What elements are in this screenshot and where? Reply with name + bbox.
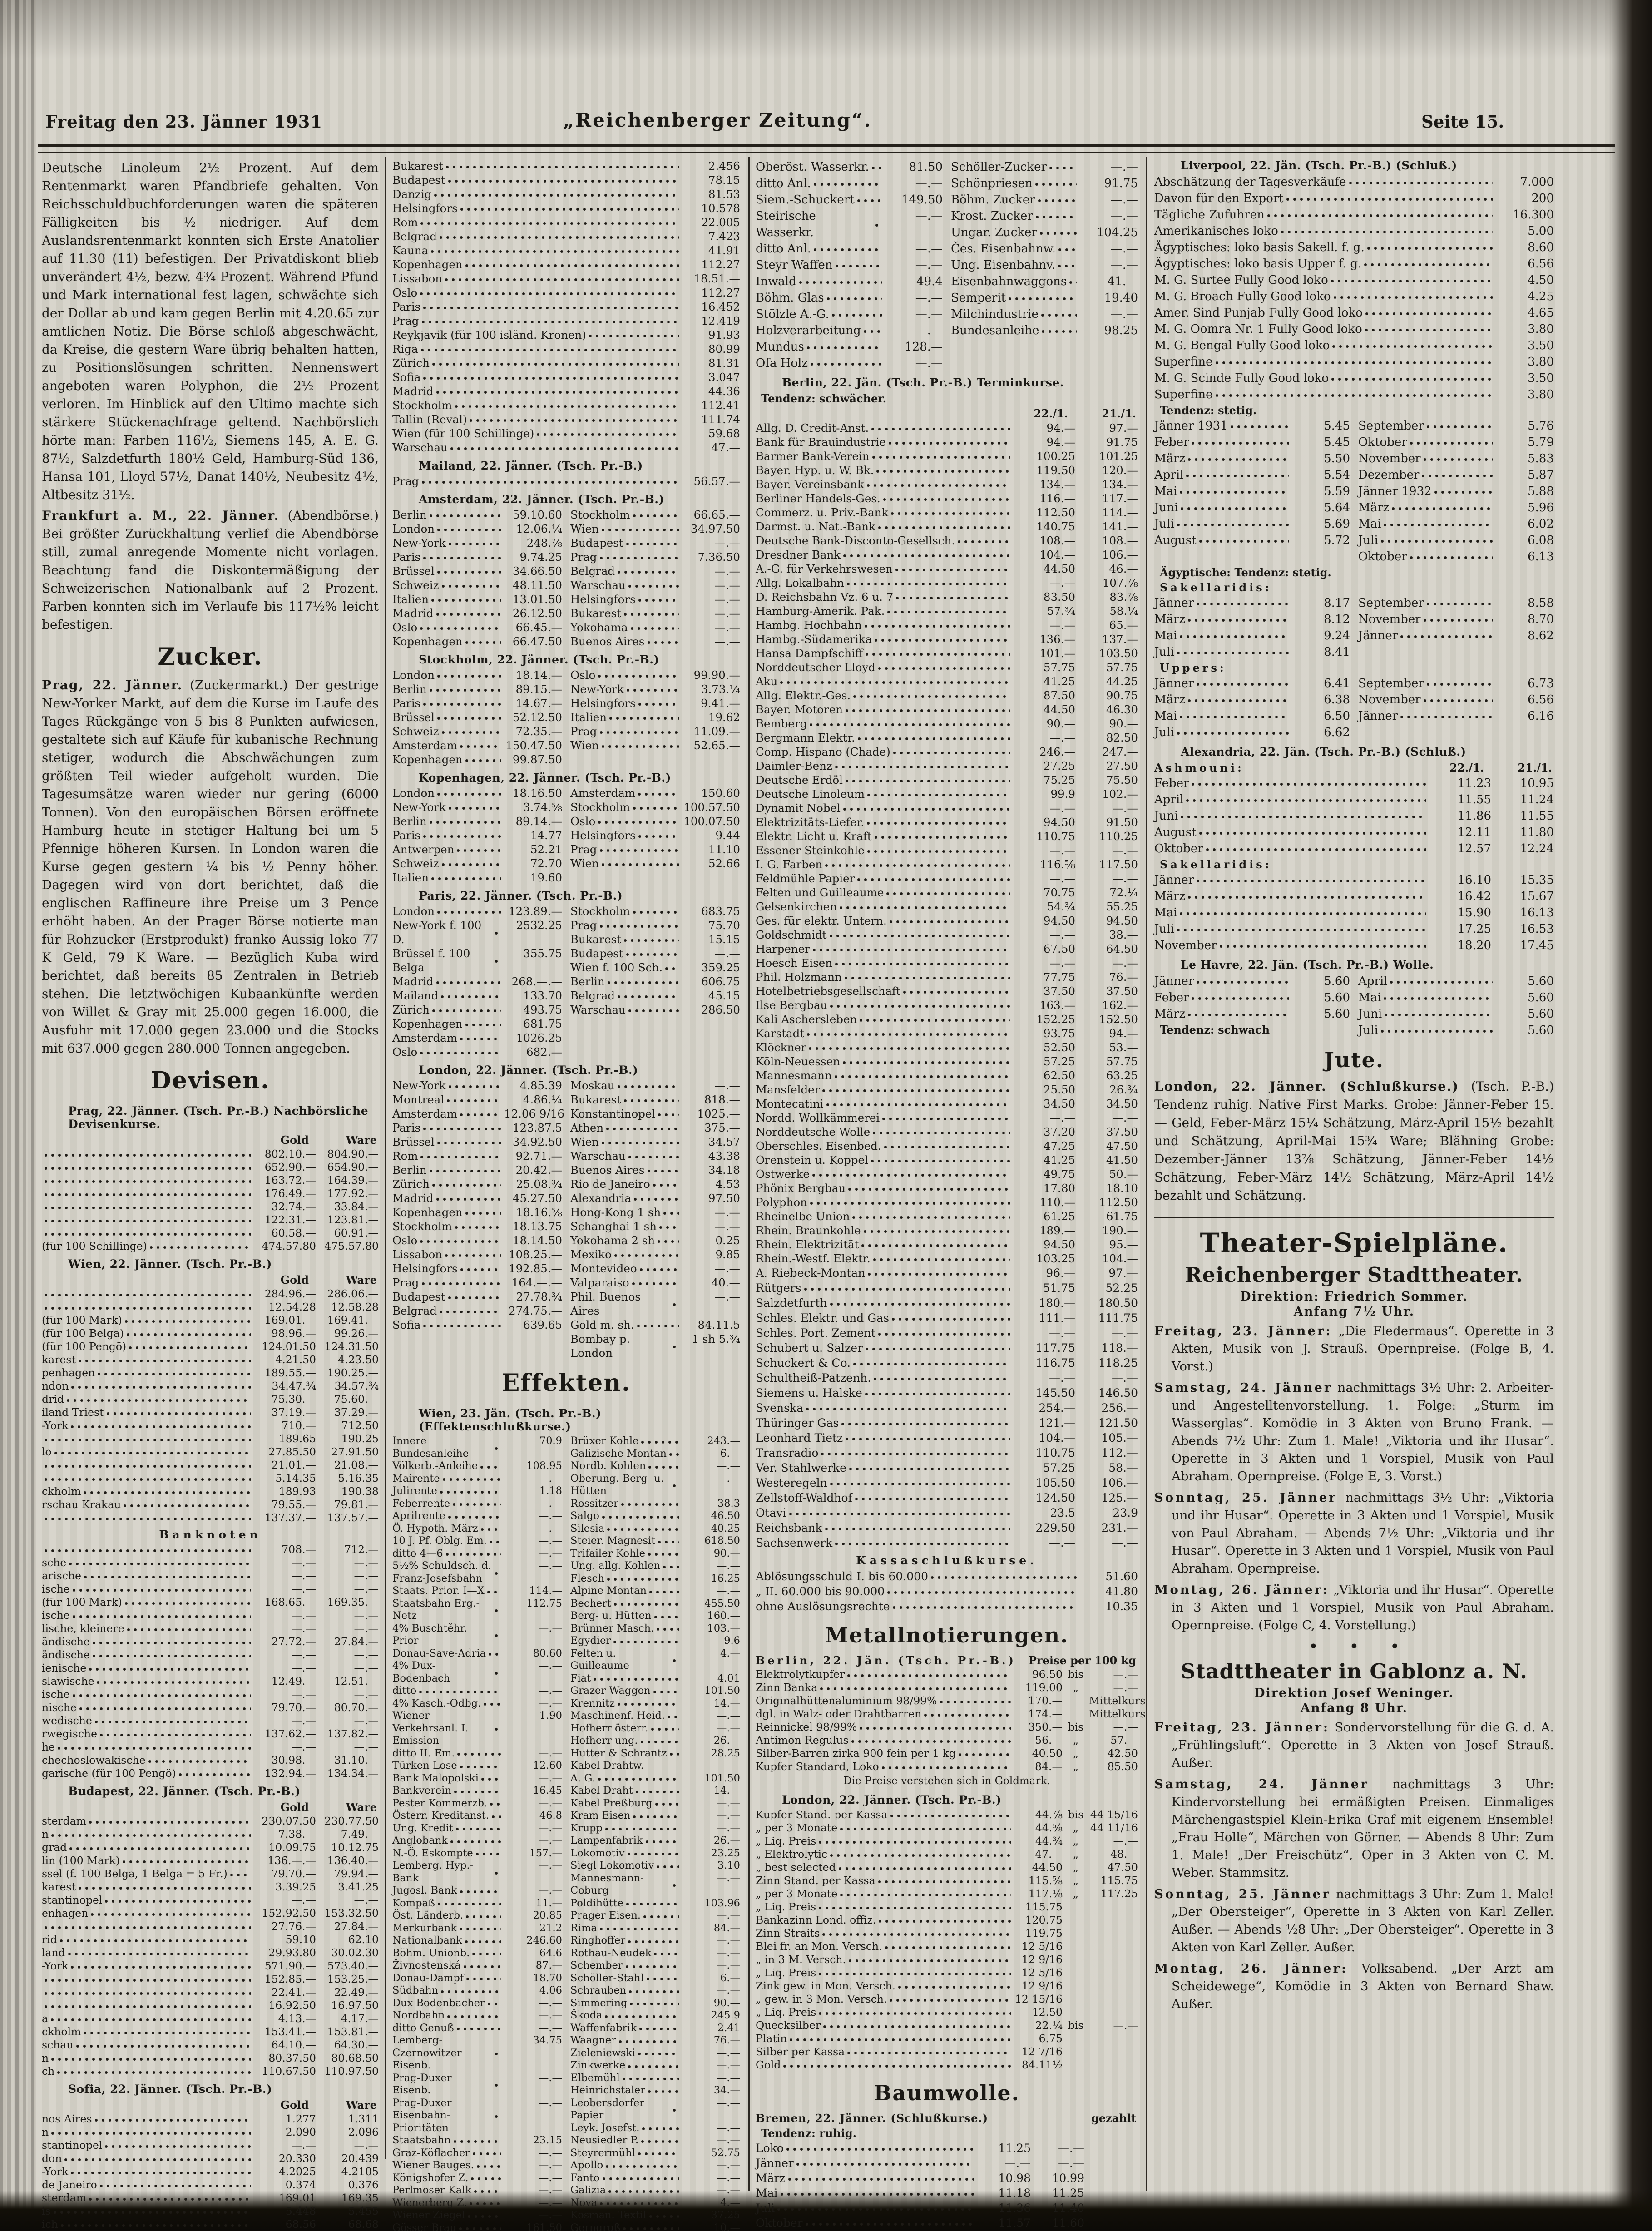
- dot-leader: [68, 1949, 251, 1957]
- row-label: Südbahn: [392, 1984, 438, 1997]
- entry-day: Samstag, 24. Jänner: [1154, 1380, 1332, 1395]
- row-value: 18.14.—: [504, 668, 562, 682]
- dot-leader: [1365, 326, 1493, 333]
- row-value: 80.99: [682, 342, 740, 356]
- dot-leader: [1180, 632, 1289, 639]
- row-connector: bis: [1063, 1721, 1089, 1734]
- gold-ware-header: GoldWare: [42, 1272, 379, 1287]
- row-value: 21.2: [504, 1922, 562, 1935]
- quote-row: Grazer Waggon101.50: [570, 1685, 740, 1697]
- row-value: 43.38: [682, 1149, 740, 1163]
- quote-row: September5.76: [1358, 418, 1554, 434]
- wien-effekten-right: Brüxer Kohle243.—Galizische Montan6.—Nor…: [570, 1435, 740, 2231]
- quote-row: (für 100 Pengö)124.01.50124.31.50: [42, 1340, 379, 1353]
- quote-row: Norddeutsche Wolle37.2037.50: [756, 1125, 1138, 1139]
- quote-row: Eisenbahnwaggons41.—: [951, 273, 1138, 290]
- row-label: Ilse Bergbau: [756, 998, 827, 1012]
- quote-row: 22.41.—22.49.—: [42, 1986, 379, 1999]
- row-value: 134.—: [1013, 477, 1075, 491]
- quote-row: Feber5.60: [1154, 989, 1350, 1006]
- quote-row: Daimler-Benz27.2527.50: [756, 759, 1138, 773]
- row-label: Merkurbank: [392, 1922, 457, 1935]
- dot-leader: [940, 1697, 1011, 1705]
- row-label: Flesch: [570, 1573, 604, 1585]
- row-label: Deutsche Linoleum: [756, 787, 865, 801]
- row-value-2: 7.49.—: [316, 1828, 379, 1841]
- row-label: Zürich: [392, 356, 430, 370]
- quote-row: Schönpriesen91.75: [951, 175, 1138, 192]
- quote-row: Elbemühl—.—: [570, 2072, 740, 2085]
- row-value-2: 37.29.—: [316, 1406, 379, 1419]
- quote-row: Bank für Brauindustrie94.—91.75: [756, 435, 1138, 449]
- row-value: 25.08.¾: [504, 1177, 562, 1191]
- quote-row: 802.10.—804.90.—: [42, 1148, 379, 1161]
- row-value-2: 97.—: [1075, 421, 1138, 435]
- row-label: Staatsbahn: [392, 2134, 451, 2147]
- quote-row: Westeregeln105.50106.—: [756, 1475, 1138, 1490]
- dot-leader: [651, 1725, 679, 1732]
- row-label: Berg- u. Hütten: [570, 1610, 652, 1623]
- dot-leader: [638, 832, 679, 839]
- quote-row: Waffenfabrik2.41: [570, 2022, 740, 2035]
- row-value: 176.49.—: [253, 1187, 316, 1200]
- col-gold: Gold: [241, 1133, 309, 1147]
- row-label: M. G. Broach Fully Good loko: [1154, 288, 1331, 305]
- row-value: 12.60: [504, 1760, 562, 1772]
- dot-leader: [420, 1153, 501, 1160]
- quote-row: Škoda245.9: [570, 2009, 740, 2022]
- row-label: Juli: [1358, 532, 1378, 549]
- quote-row: Nordb. Kohlen—.—: [570, 1460, 740, 1473]
- wien-tail-right: Schöller-Zucker—.—Schönpriesen91.75Böhm.…: [951, 159, 1138, 371]
- quote-row: Fanto—.—: [570, 2172, 740, 2185]
- quote-row: Kali Aschersleben152.25152.50: [756, 1012, 1138, 1026]
- quote-row: Lissabon108.25.—: [392, 1247, 562, 1261]
- dot-leader: [1220, 942, 1426, 949]
- dot-leader: [460, 1110, 501, 1118]
- row-label: Apollo: [570, 2159, 603, 2172]
- row-value: 99.87.50: [504, 752, 562, 767]
- row-label: Jänner: [1358, 708, 1398, 724]
- quote-row: Dresdner Bank104.—106.—: [756, 548, 1138, 562]
- quote-row: Ablösungsschuld I. bis 60.00051.60: [756, 1569, 1138, 1584]
- quote-row: Kompaß11.—: [392, 1897, 562, 1910]
- row-value-2: 62.10: [316, 1933, 379, 1946]
- dot-leader: [71, 1383, 251, 1390]
- quote-row: Madrid45.27.50: [392, 1191, 562, 1205]
- dot-leader: [626, 950, 679, 957]
- row-label: Antimon Regulus: [756, 1734, 849, 1747]
- row-label: Oberöst. Wasserkr.: [756, 159, 869, 175]
- quote-row: ditto Anl.—.—: [756, 241, 943, 257]
- row-label: Schubert u. Salzer: [756, 1341, 863, 1355]
- dot-leader: [618, 568, 679, 575]
- quote-row: nos Aires1.2771.311: [42, 2112, 379, 2126]
- row-value: 639.65: [504, 1318, 562, 1332]
- quote-row: Siemens u. Halske145.50146.50: [756, 1385, 1138, 1400]
- dot-leader: [79, 1356, 251, 1364]
- stockholm-table: London18.14.—Berlin89.15.—Paris14.67.—Br…: [392, 668, 740, 767]
- row-value: —.—: [253, 1583, 316, 1596]
- row-label: Krennitz: [570, 1697, 615, 1710]
- dot-leader: [832, 311, 882, 318]
- row-value: 150.47.50: [504, 738, 562, 752]
- row-value: 59.68: [682, 426, 740, 440]
- row-value: —.—: [504, 2147, 562, 2160]
- row-value: 1.90: [504, 1710, 562, 1722]
- row-value: 90.—: [682, 1997, 740, 2010]
- row-label: Abschätzung der Tagesverkäufe: [1154, 174, 1346, 190]
- dot-leader: [431, 247, 679, 254]
- row-value: 44.50: [1013, 562, 1075, 576]
- dot-leader: [100, 1731, 251, 1738]
- dot-leader: [857, 196, 882, 203]
- dot-leader: [626, 1962, 679, 1969]
- dot-leader: [45, 1217, 251, 1224]
- row-value-2: 164.39.—: [316, 1174, 379, 1187]
- dot-leader: [420, 219, 679, 226]
- quote-row: n80.37.5080.68.50: [42, 2052, 379, 2065]
- row-value: —.—: [682, 592, 740, 606]
- row-label: Berlin: [392, 814, 427, 828]
- dot-leader: [430, 818, 501, 825]
- row-value-2: 57.—: [1089, 1734, 1138, 1747]
- row-label: Škoda: [570, 2009, 602, 2022]
- row-value-2: 94.—: [1075, 1026, 1138, 1040]
- row-value: 5.87: [1496, 467, 1554, 483]
- dot-leader: [841, 1420, 1010, 1427]
- row-label: Egydier: [570, 1635, 611, 1647]
- quote-row: Deutsche Erdöl75.2575.50: [756, 773, 1138, 787]
- quote-row: Zieleniewski—.—: [570, 2047, 740, 2060]
- row-label: Zink gew. in Mon. Versch.: [756, 1979, 895, 1993]
- quote-row: Jänner8.62: [1358, 628, 1554, 644]
- direktion-line: Direktion: Friedrich Sommer.: [1154, 1290, 1554, 1304]
- row-value: 1.277: [253, 2112, 316, 2126]
- dot-leader: [827, 294, 882, 302]
- dot-leader: [810, 1199, 1010, 1206]
- row-value: 10.09.75: [253, 1841, 316, 1854]
- dot-leader: [45, 1435, 251, 1443]
- row-label: Prag: [392, 314, 419, 328]
- quote-row: Kopenhagen681.75: [392, 1017, 562, 1031]
- row-value: 2.090: [253, 2126, 316, 2139]
- row-connector: „: [1063, 1835, 1089, 1848]
- quote-row: Simmering90.—: [570, 1997, 740, 2010]
- dot-leader: [71, 2168, 251, 2176]
- row-label: „ II. 60.000 bis 90.000: [756, 1584, 885, 1599]
- row-label: (für 100 Schillinge): [42, 1240, 147, 1253]
- dot-leader: [1180, 488, 1289, 495]
- row-value: —.—: [682, 1560, 740, 1573]
- row-value: 32.74.—: [253, 1200, 316, 1213]
- row-label: Yokohama 2 sh: [570, 1233, 655, 1247]
- quote-row: Jänner 19325.88: [1358, 483, 1554, 500]
- quote-row: Gold84.11½: [756, 2058, 1138, 2072]
- dot-leader: [179, 1770, 251, 1777]
- row-value: 27.72.—: [253, 1635, 316, 1648]
- quote-row: Oberöst. Wasserkr.81.50: [756, 159, 943, 175]
- ashmouni-table: Feber11.2310.95April11.5511.24Juni11.861…: [1154, 775, 1554, 857]
- dot-leader: [882, 1114, 1010, 1122]
- dot-leader: [875, 636, 1010, 643]
- row-value-2: 60.91.—: [316, 1227, 379, 1240]
- quote-row: Bankazinn Lond. offiz.120.75: [756, 1914, 1138, 1927]
- row-label: Oktober: [1358, 549, 1407, 565]
- row-label: Bukarest: [570, 1093, 621, 1107]
- row-value: 27.85.50: [253, 1445, 316, 1459]
- quote-row: Juni5.60: [1358, 1006, 1554, 1022]
- dot-leader: [495, 1631, 501, 1638]
- dot-leader: [420, 289, 679, 297]
- row-value: 5.00: [1496, 223, 1554, 239]
- dot-leader: [447, 2012, 501, 2019]
- dot-leader: [889, 439, 1010, 446]
- dot-leader: [91, 1910, 251, 1917]
- row-value: 12 5/16: [1014, 1940, 1063, 1953]
- row-label: Allg. D. Credit-Anst.: [756, 421, 869, 435]
- quote-row: Rom22.005: [392, 215, 740, 229]
- quote-row: Kopenhagen66.47.50: [392, 634, 562, 648]
- row-value: 8.58: [1496, 595, 1554, 611]
- quote-row: Paris123.87.5: [392, 1121, 562, 1135]
- row-value: 11.10: [682, 842, 740, 856]
- row-label: Rhein. Elektrizität: [756, 1237, 859, 1252]
- row-value: 14.67.—: [504, 696, 562, 710]
- quote-row: Ostwerke49.7550.—: [756, 1167, 1138, 1181]
- quote-row: -York571.90.—573.40.—: [42, 1959, 379, 1973]
- quote-row: Hambg.-Südamerika136.—137.—: [756, 632, 1138, 646]
- dot-leader: [495, 1444, 501, 1451]
- dot-leader: [495, 2081, 501, 2088]
- dot-leader: [820, 1684, 1011, 1692]
- row-label: New-York: [570, 682, 624, 696]
- wien-effekten-left: Innere Bundesanleihe70.9Völkerb.-Anleihe…: [392, 1435, 562, 2231]
- quote-row: M. G. Bengal Fully Good loko3.50: [1154, 337, 1554, 354]
- row-label: iland Triest: [42, 1406, 104, 1419]
- row-label: Juli: [1154, 724, 1174, 741]
- stockholm-left: London18.14.—Berlin89.15.—Paris14.67.—Br…: [392, 668, 562, 767]
- row-label: ische: [42, 1688, 70, 1701]
- row-label: ckholm: [42, 1485, 81, 1498]
- row-label: Schultheiß-Patzenh.: [756, 1370, 871, 1385]
- dot-leader: [438, 1900, 501, 1907]
- quote-row: Brüxer Kohle243.—: [570, 1435, 740, 1448]
- row-label: Živnostenská: [392, 1959, 461, 1972]
- row-value: 245.9: [682, 2009, 740, 2022]
- row-value: 34.18: [682, 1163, 740, 1177]
- banknoten-table: 708.—712.—sche—.——.—arische—.——.—ische—.…: [42, 1543, 379, 1780]
- dot-leader: [673, 1342, 679, 1350]
- row-label: Elektrizitäts-Liefer.: [756, 815, 864, 829]
- row-value: 4.65: [1496, 305, 1554, 321]
- row-value: 14.—: [682, 1697, 740, 1710]
- row-label: Sofia: [392, 370, 420, 384]
- quote-row: Semperit19.40: [951, 290, 1138, 306]
- dot-leader: [895, 565, 1010, 573]
- row-value-2: 17.45: [1491, 937, 1554, 954]
- quote-row: Feberrente—.—: [392, 1498, 562, 1510]
- dot-leader: [107, 1409, 251, 1416]
- dot-leader: [648, 638, 680, 645]
- row-label: Jugosl. Bank: [392, 1885, 457, 1897]
- row-value: 5.60: [1496, 989, 1554, 1006]
- row-value: 108.—: [1013, 534, 1075, 548]
- dot-leader: [878, 1877, 1011, 1885]
- row-value: 5.72: [1292, 532, 1350, 549]
- row-connector: bis: [1063, 1668, 1089, 1681]
- quote-row: ch110.67.50110.97.50: [42, 2065, 379, 2078]
- dot-leader: [51, 2015, 251, 2023]
- dot-leader: [459, 2224, 501, 2231]
- prag-devisen-table: 802.10.—804.90.—652.90.—654.90.—163.72.—…: [42, 1148, 379, 1253]
- dot-leader: [848, 1185, 1010, 1192]
- dot-leader: [45, 1923, 251, 1930]
- quote-row: Deutsche Linoleum99.9102.—: [756, 787, 1138, 801]
- row-label: Bankverein: [392, 1785, 451, 1797]
- dot-leader: [924, 1711, 1011, 1718]
- row-value: 100.07.50: [682, 814, 740, 828]
- row-label: stantinopel: [42, 2139, 102, 2152]
- row-label: Wienerberg Z.: [392, 2197, 467, 2210]
- row-value: 15.15: [682, 932, 740, 946]
- row-label: ditto II. Em.: [392, 1747, 455, 1760]
- dot-leader: [45, 1164, 251, 1171]
- quote-row: Konstantinopel1025.—: [570, 1107, 740, 1121]
- dot-leader: [430, 511, 501, 519]
- dot-leader: [849, 1956, 1011, 1964]
- dot-leader: [633, 1812, 679, 1820]
- row-value: 145.50: [1013, 1385, 1075, 1400]
- quote-row: Sofia639.65: [392, 1318, 562, 1332]
- row-value-2: 46.30: [1075, 702, 1138, 717]
- dot-leader: [629, 1987, 679, 1994]
- row-value: 62.50: [1013, 1069, 1075, 1083]
- quote-row: Commerz. u. Priv.-Bank112.50114.—: [756, 505, 1138, 519]
- row-value: 286.50: [682, 1003, 740, 1017]
- quote-row: Prag164.—.—: [392, 1276, 562, 1290]
- quote-row: Warschau47.—: [392, 440, 740, 455]
- row-label: Zinn Straits: [756, 1927, 820, 1940]
- row-value: 66.65.—: [682, 508, 740, 522]
- row-label: Schönpriesen: [951, 175, 1033, 192]
- quote-row: Böhm. Unionb.64.6: [392, 1947, 562, 1960]
- stockholm-right: Oslo99.90.—New-York3.73.¼Helsingfors9.41…: [570, 668, 740, 767]
- quote-row: Lemberg. Hyp.-Bank—.—: [392, 1860, 562, 1885]
- row-label: Davon für den Export: [1154, 190, 1284, 207]
- row-label: Nationalbank: [392, 1934, 462, 1947]
- row-value: 474.57.80: [253, 1240, 316, 1253]
- dot-leader: [819, 1904, 1011, 1911]
- row-value: —.—: [504, 1523, 562, 1535]
- row-label: ch: [42, 2065, 54, 2078]
- row-label: Orenstein u. Koppel: [756, 1153, 868, 1167]
- row-label: Wien (für 100 Schillinge): [392, 426, 534, 440]
- row-value: 94.—: [1013, 421, 1075, 435]
- quote-row: New-York f. 100 D.2532.25: [392, 918, 562, 946]
- row-value: 248.⅞: [504, 536, 562, 550]
- dot-leader: [873, 1255, 1010, 1262]
- quote-row: Brünner Masch.103.—: [570, 1623, 740, 1635]
- row-value: 77.75: [1013, 970, 1075, 984]
- quote-row: I. G. Farben116.⅝117.50: [756, 857, 1138, 871]
- row-label: Steirische Wasserkr.: [756, 208, 873, 241]
- quote-row: Hofherr ung.26.—: [570, 1735, 740, 1747]
- row-connector: „: [1063, 1760, 1089, 1773]
- dot-leader: [1177, 520, 1289, 528]
- row-value-2: 118.25: [1075, 1355, 1138, 1370]
- dot-leader: [45, 1514, 251, 1522]
- row-label: März: [1154, 692, 1185, 708]
- row-value-2: 107.⅞: [1075, 576, 1138, 590]
- quote-row: Jänner 19315.45: [1154, 418, 1350, 434]
- dot-leader: [45, 1151, 251, 1158]
- quote-row: Paris16.452: [392, 300, 740, 314]
- row-label: Kupfer Standard, Loko: [756, 1760, 879, 1773]
- dot-leader: [1040, 229, 1077, 236]
- row-value: 22.41.—: [253, 1986, 316, 1999]
- row-label: September: [1358, 418, 1424, 434]
- quote-row: Superfine3.80: [1154, 354, 1554, 370]
- row-label: Hofherr österr.: [570, 1722, 648, 1735]
- row-value: 28.25: [682, 1747, 740, 1760]
- row-value: —.—: [682, 2134, 740, 2147]
- row-value: —.—: [682, 1585, 740, 1598]
- row-value: 5.45: [1292, 434, 1350, 450]
- quote-row: Gösser Brau161.50: [392, 2222, 562, 2231]
- quote-row: Oslo100.07.50: [570, 814, 740, 828]
- row-label: (für 100 Mark): [42, 1596, 122, 1609]
- quote-row: n2.0902.096: [42, 2126, 379, 2139]
- row-value-2: 34.57.¾: [316, 1380, 379, 1393]
- row-label: Wiener Bauges.: [392, 2159, 474, 2172]
- entry-text: nachmittags 3 Uhr: Kindervorstellung bei…: [1172, 1777, 1554, 1880]
- row-value: 12 9/16: [1014, 1979, 1063, 1993]
- quote-row: Staatsbahn23.15: [392, 2134, 562, 2147]
- row-label: Juli: [1154, 516, 1174, 532]
- row-value-2: 120.—: [1075, 463, 1138, 477]
- row-value-2: 34.50: [1075, 1097, 1138, 1111]
- row-value: 40.—: [682, 1276, 740, 1290]
- dot-leader: [670, 1750, 679, 1757]
- row-value: 9.85: [682, 1247, 740, 1261]
- quote-row: M. G. Surtee Fully Good loko4.50: [1154, 272, 1554, 288]
- budapest-devisen-head: Budapest, 22. Jänner. (Tsch. Pr.-B.): [42, 1780, 379, 1800]
- dot-leader: [639, 2024, 679, 2032]
- col-gold: Gold: [241, 2098, 309, 2112]
- row-value-2: 712.—: [316, 1543, 379, 1556]
- dot-leader: [860, 1724, 1011, 1731]
- quote-row: A. Riebeck-Montan96.—97.—: [756, 1266, 1138, 1281]
- row-value-2: 137.57.—: [316, 1511, 379, 1524]
- row-label: Amsterdam: [392, 738, 457, 752]
- quote-row: (für 100 Schillinge)474.57.80475.57.80: [42, 1240, 379, 1253]
- row-value-2: —.—: [1075, 843, 1138, 857]
- row-label: lo: [42, 1445, 52, 1459]
- quote-row: Belgrad—.—: [570, 564, 740, 578]
- row-label: Bank für Brauindustrie: [756, 435, 886, 449]
- row-value: 4.85.39: [504, 1078, 562, 1093]
- row-label: Brüssel: [392, 1135, 435, 1149]
- quote-row: Buenos Aires34.18: [570, 1163, 740, 1177]
- row-value: 19.60: [504, 871, 562, 885]
- quote-row: Ung. allg. Kohlen—.—: [570, 1560, 740, 1573]
- row-value-2: 10.12.75: [316, 1841, 379, 1854]
- row-label: Siem.-Schuckert: [756, 192, 855, 208]
- row-label: Hutter & Schrantz: [570, 1747, 667, 1760]
- row-value: 75.25: [1013, 773, 1075, 787]
- row-value: 48.11.50: [504, 578, 562, 592]
